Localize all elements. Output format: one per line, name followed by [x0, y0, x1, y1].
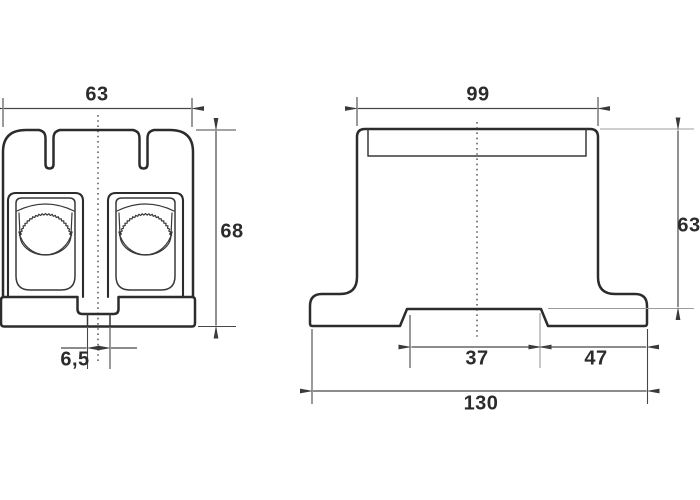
grip-under-arc: [119, 232, 172, 255]
serrated-grip: [119, 214, 171, 236]
clamp-cup: [119, 213, 172, 255]
dim-label-side-top-width: 99: [466, 84, 489, 107]
side-dimensions: [312, 97, 694, 404]
side-body-outline: [310, 129, 647, 326]
technical-drawing-canvas: [0, 0, 700, 500]
front-view: [1, 98, 236, 369]
grip-under-arc: [19, 232, 72, 255]
dim-label-front-width: 63: [85, 84, 108, 107]
front-base: [1, 297, 195, 327]
dim-label-side-recess-width: 37: [465, 348, 488, 371]
technical-drawing-page: 63 68 6,5 99 63 37 47 130: [0, 0, 700, 500]
clamp-cup: [19, 213, 72, 255]
clamp-arch: [117, 204, 174, 211]
clamp-arch: [17, 204, 74, 211]
dim-label-side-base-width: 130: [464, 393, 499, 416]
mounting-slot-lines: [88, 314, 111, 327]
dim-label-front-slot-width: 6,5: [60, 349, 89, 372]
serrated-grip: [19, 214, 71, 236]
dim-label-side-right-section: 47: [584, 348, 607, 371]
terminal-opening-right: [108, 193, 183, 297]
dim-label-front-height: 68: [220, 221, 243, 244]
terminal-opening-left: [8, 193, 83, 297]
dim-label-side-height: 63: [677, 215, 700, 238]
side-view: [310, 97, 694, 404]
